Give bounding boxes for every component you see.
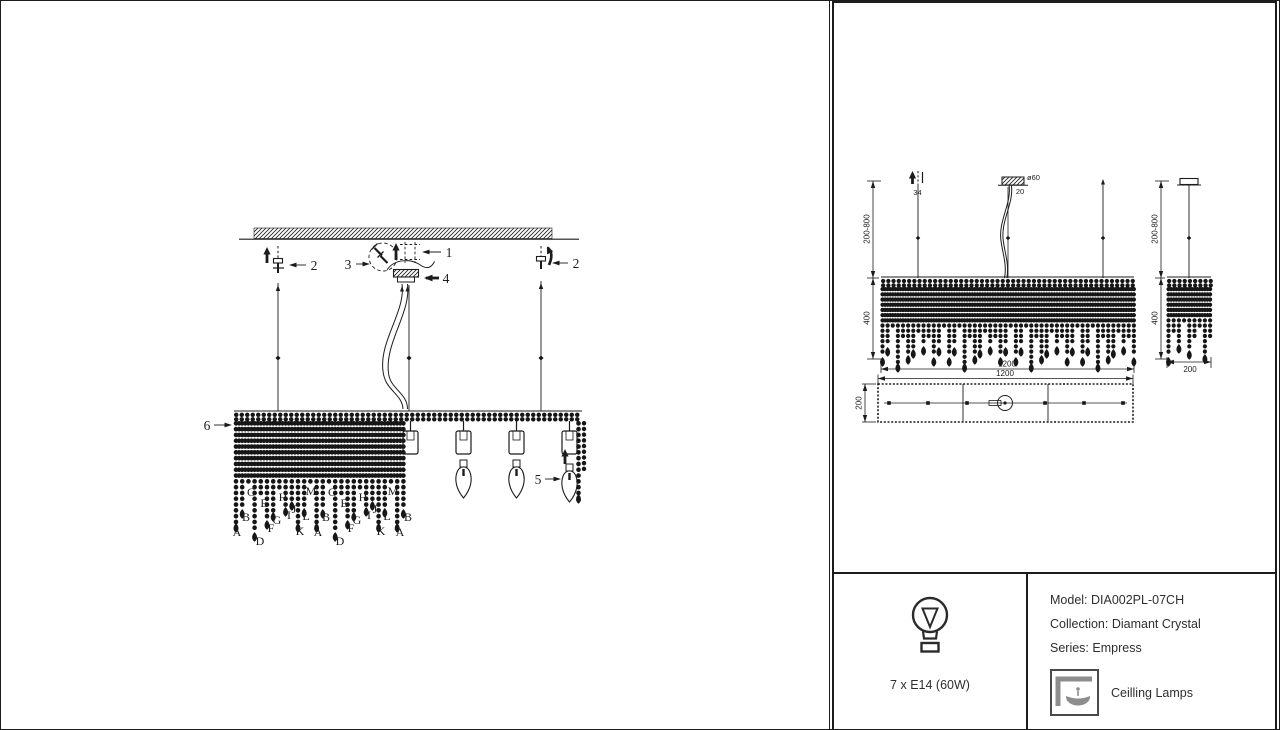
svg-text:M: M bbox=[388, 484, 399, 498]
svg-text:20: 20 bbox=[1016, 187, 1024, 196]
suspension-wires bbox=[275, 281, 543, 411]
model-line: Model: DIA002PL-07CH bbox=[1050, 594, 1275, 607]
svg-text:400: 400 bbox=[863, 311, 872, 325]
svg-text:1200: 1200 bbox=[996, 369, 1014, 378]
svg-text:B: B bbox=[322, 510, 330, 524]
panel-divider-line bbox=[829, 1, 830, 730]
svg-text:200: 200 bbox=[855, 396, 864, 410]
svg-text:200: 200 bbox=[1183, 365, 1197, 374]
svg-text:34: 34 bbox=[913, 188, 921, 197]
plan-view: 1200200 bbox=[855, 369, 1134, 422]
product-meta-cell: Model: DIA002PL-07CH Collection: Diamant… bbox=[1028, 574, 1275, 730]
svg-text:2: 2 bbox=[311, 258, 318, 273]
bulb-caption: 7 x E14 (60W) bbox=[890, 678, 970, 692]
canopy-assembly bbox=[369, 242, 435, 282]
bulb-spec-cell: 7 x E14 (60W) bbox=[834, 574, 1028, 730]
svg-text:K: K bbox=[377, 524, 386, 538]
svg-text:4: 4 bbox=[443, 271, 450, 286]
svg-text:M: M bbox=[306, 484, 317, 498]
front-view: 34ø6020200-8004001200 bbox=[863, 171, 1137, 373]
hook-right bbox=[537, 246, 554, 269]
collection-line: Collection: Diamant Crystal bbox=[1050, 618, 1275, 631]
svg-text:B: B bbox=[242, 510, 250, 524]
ceiling bbox=[239, 228, 579, 239]
svg-text:1: 1 bbox=[446, 245, 453, 260]
spec-sheet-page: 1223456ABCDEFGHIJKLMABCDEFGHIJKLMAB34ø60… bbox=[0, 0, 1280, 730]
svg-text:ø60: ø60 bbox=[1027, 173, 1040, 182]
svg-text:J: J bbox=[292, 502, 297, 516]
callout-3: 3 bbox=[345, 257, 370, 272]
callout-2: 2 bbox=[289, 258, 317, 273]
svg-text:H: H bbox=[279, 490, 288, 504]
svg-text:J: J bbox=[373, 502, 378, 516]
svg-text:I: I bbox=[367, 508, 371, 522]
callout-6: 6 bbox=[204, 418, 232, 433]
svg-text:D: D bbox=[256, 534, 265, 548]
category-label: Ceilling Lamps bbox=[1111, 686, 1193, 700]
category-row: Ceilling Lamps bbox=[1050, 669, 1275, 716]
power-cords bbox=[383, 284, 410, 409]
svg-text:I: I bbox=[287, 508, 291, 522]
bead-curtain bbox=[234, 423, 584, 542]
svg-text:1200: 1200 bbox=[998, 360, 1016, 369]
svg-text:G: G bbox=[273, 513, 282, 527]
svg-text:L: L bbox=[383, 509, 390, 523]
svg-text:A: A bbox=[314, 525, 323, 539]
dimension-views: 34ø6020200-80040012001200200200-80040020… bbox=[855, 171, 1212, 422]
ceiling-lamp-icon bbox=[1050, 669, 1099, 716]
svg-text:2: 2 bbox=[573, 256, 580, 271]
svg-text:400: 400 bbox=[1151, 311, 1160, 325]
assembly-diagram: 1223456ABCDEFGHIJKLMABCDEFGHIJKLMAB bbox=[204, 228, 584, 548]
svg-text:A: A bbox=[396, 525, 405, 539]
callout-4: 4 bbox=[424, 271, 450, 286]
svg-text:C: C bbox=[328, 485, 336, 499]
svg-text:E: E bbox=[260, 496, 267, 510]
callout-5: 5 bbox=[535, 472, 561, 487]
sockets-and-bulbs bbox=[403, 421, 577, 502]
callout-1: 1 bbox=[422, 245, 452, 260]
svg-text:3: 3 bbox=[345, 257, 352, 272]
svg-text:K: K bbox=[296, 524, 305, 538]
svg-text:H: H bbox=[359, 490, 368, 504]
svg-text:A: A bbox=[233, 525, 242, 539]
light-bulb-icon bbox=[906, 596, 954, 670]
callout-2: 2 bbox=[552, 256, 579, 271]
svg-text:L: L bbox=[302, 509, 309, 523]
svg-text:5: 5 bbox=[535, 472, 542, 487]
svg-text:E: E bbox=[340, 496, 347, 510]
side-view: 200-800400200 bbox=[1151, 179, 1212, 375]
svg-text:G: G bbox=[353, 513, 362, 527]
svg-text:200-800: 200-800 bbox=[863, 214, 872, 244]
svg-text:B: B bbox=[404, 510, 412, 524]
svg-text:C: C bbox=[247, 485, 255, 499]
svg-text:D: D bbox=[336, 534, 345, 548]
svg-text:6: 6 bbox=[204, 418, 211, 433]
hook-left bbox=[263, 246, 284, 273]
info-table: 7 x E14 (60W) Model: DIA002PL-07CH Colle… bbox=[832, 572, 1277, 730]
series-line: Series: Empress bbox=[1050, 642, 1275, 655]
svg-text:200-800: 200-800 bbox=[1151, 214, 1160, 244]
frame-rail bbox=[234, 411, 582, 419]
